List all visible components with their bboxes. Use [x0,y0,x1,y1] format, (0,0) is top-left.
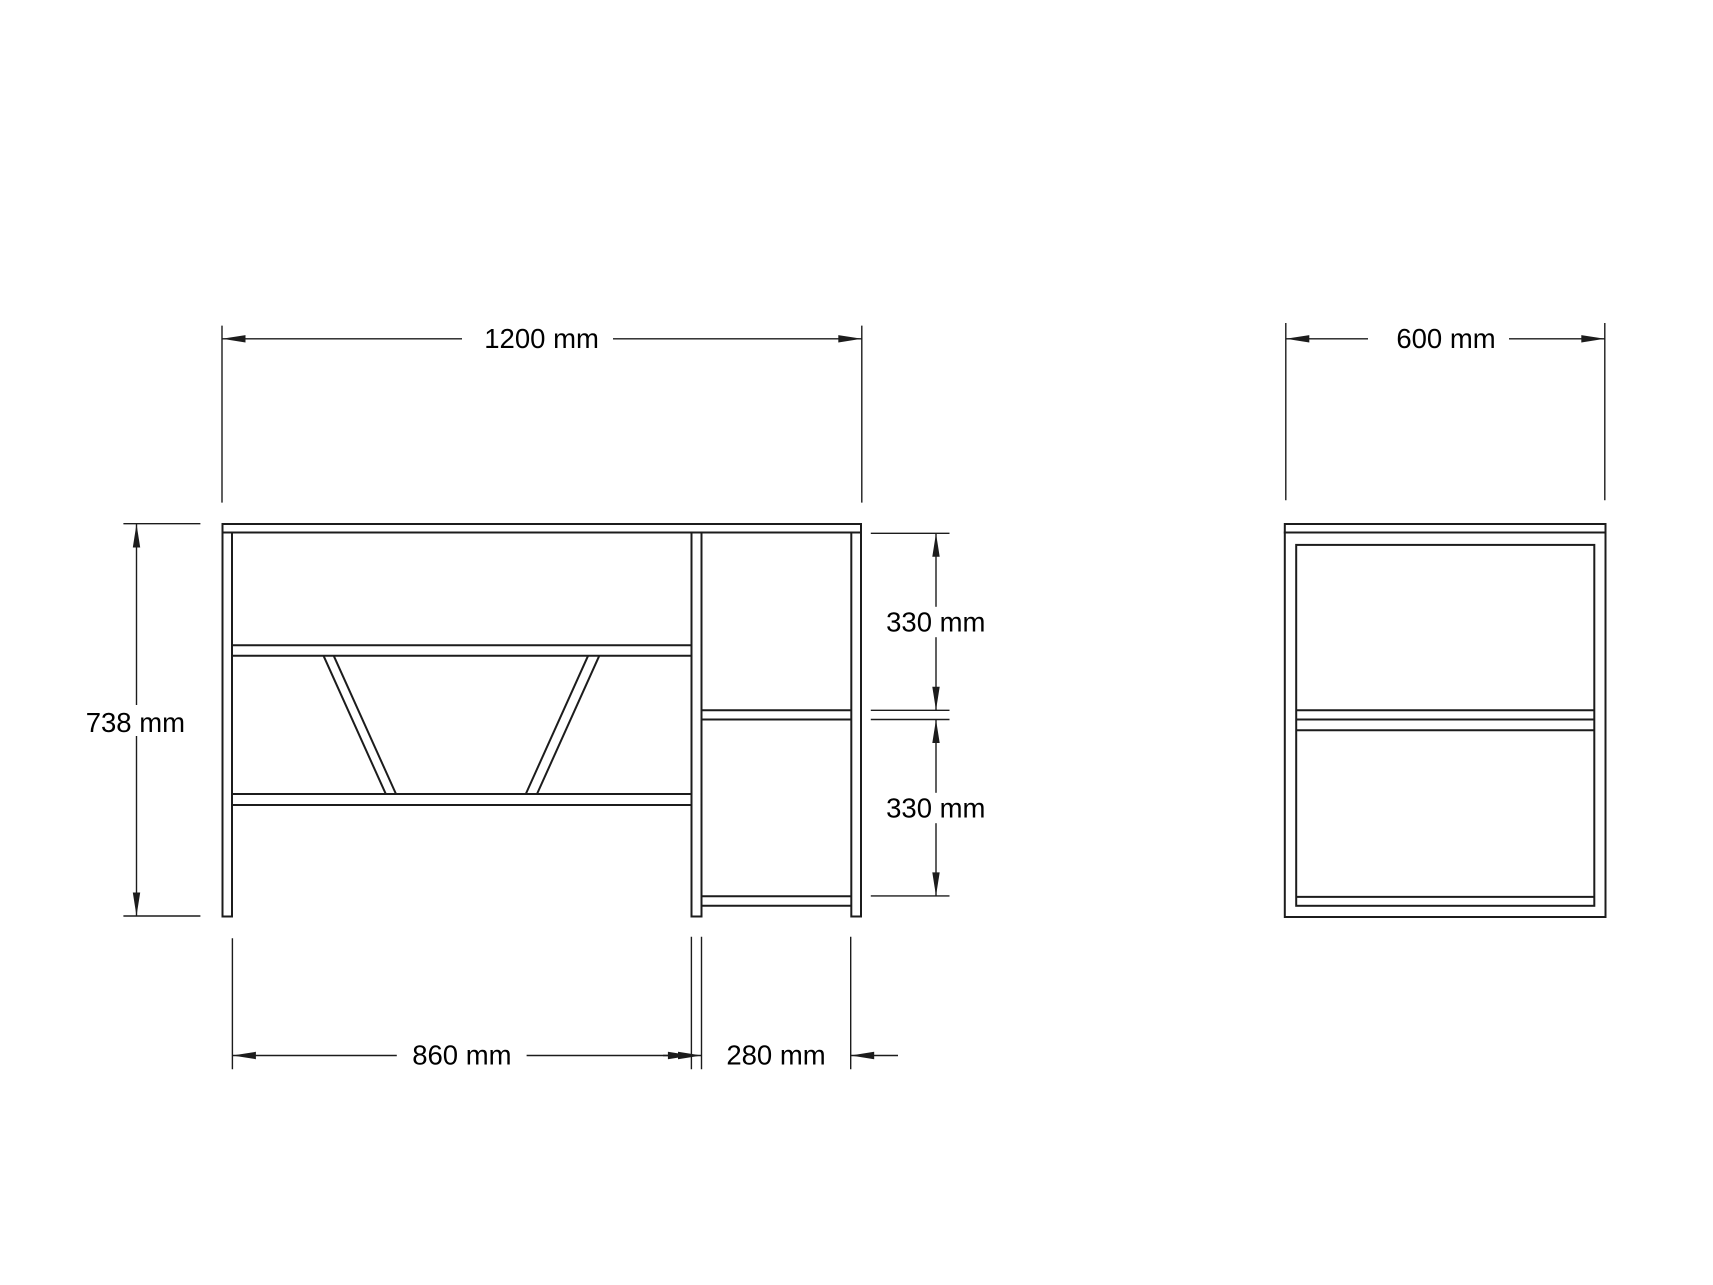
svg-text:1200 mm: 1200 mm [484,323,599,354]
svg-text:280 mm: 280 mm [726,1040,825,1071]
svg-text:330 mm: 330 mm [886,607,985,638]
svg-text:860 mm: 860 mm [412,1040,511,1071]
svg-text:330 mm: 330 mm [886,792,985,823]
svg-text:600 mm: 600 mm [1396,323,1495,354]
svg-text:738 mm: 738 mm [86,707,185,738]
